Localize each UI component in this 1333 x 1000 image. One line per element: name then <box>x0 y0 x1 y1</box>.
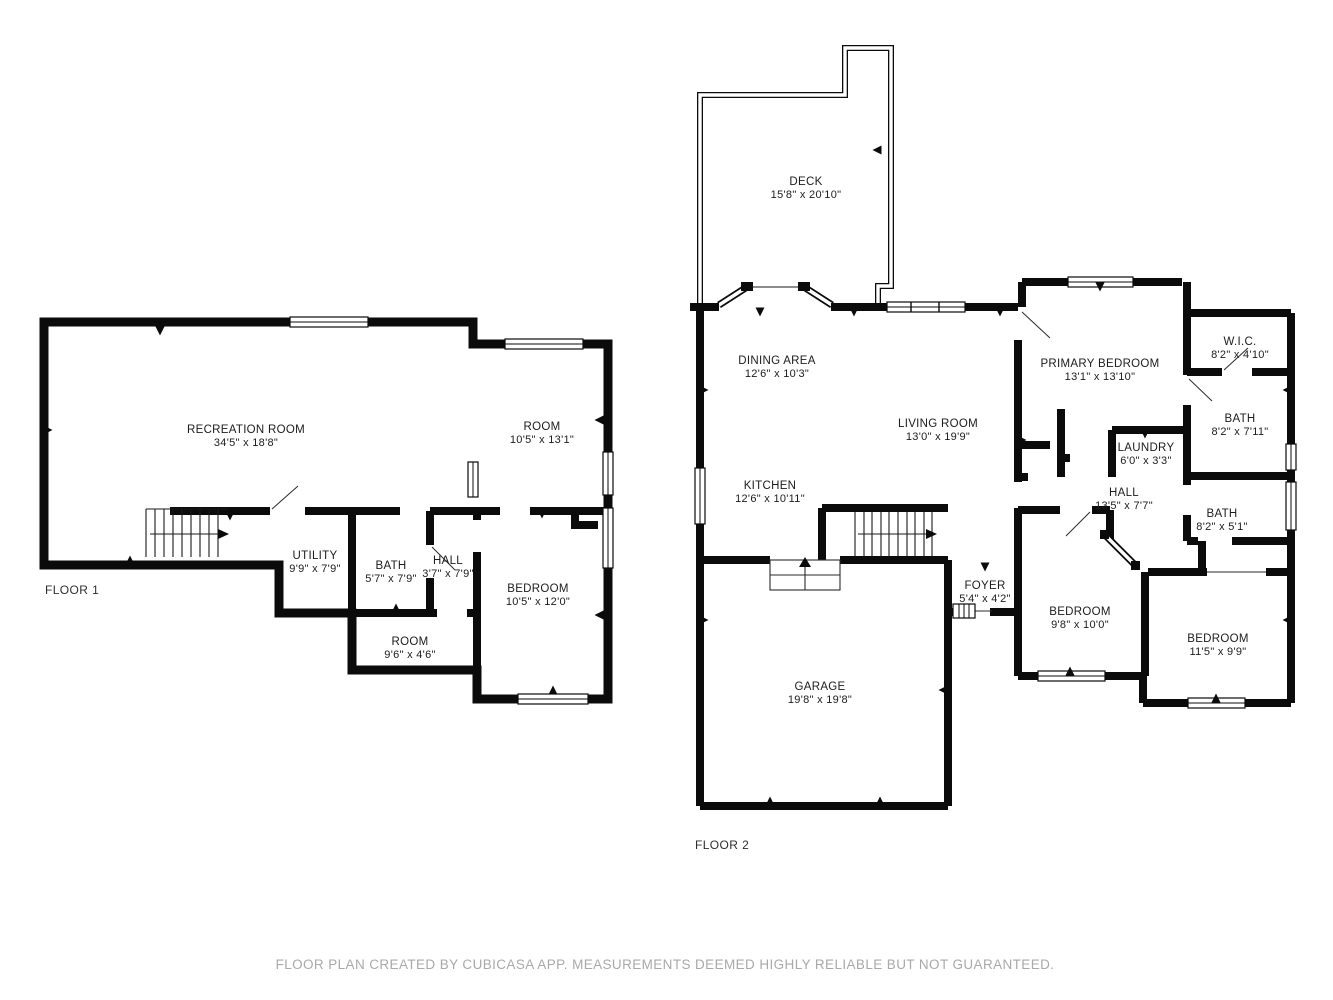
room-label-hall-f2: HALL 13'5" x 7'7" <box>1095 487 1153 513</box>
room-label-bath-f1: BATH 5'7" x 7'9" <box>365 560 416 586</box>
room-label-bedroom-f1: BEDROOM 10'5" x 12'0" <box>506 583 570 609</box>
room-label-hall-f1: HALL 3'7" x 7'9" <box>422 555 473 581</box>
room-label-laundry: LAUNDRY 6'0" x 3'3" <box>1118 442 1175 468</box>
dimension-ticks <box>44 146 1292 806</box>
room-label-recreation: RECREATION ROOM 34'5" x 18'8" <box>187 424 305 450</box>
room-label-foyer: FOYER 5'4" x 4'2" <box>959 580 1010 606</box>
room-label-bath-upper: BATH 8'2" x 7'11" <box>1212 413 1269 439</box>
room-label-garage: GARAGE 19'8" x 19'8" <box>788 681 852 707</box>
floor2-label: FLOOR 2 <box>695 838 749 852</box>
room-label-wic: W.I.C. 8'2" x 4'10" <box>1211 336 1269 362</box>
room-label-bath-lower: BATH 8'2" x 5'1" <box>1196 508 1247 534</box>
room-label-kitchen: KITCHEN 12'6" x 10'11" <box>735 480 805 506</box>
floor1-label: FLOOR 1 <box>45 583 99 597</box>
footer-disclaimer: FLOOR PLAN CREATED BY CUBICASA APP. MEAS… <box>276 957 1055 972</box>
room-label-utility: UTILITY 9'9" x 7'9" <box>289 550 340 576</box>
room-label-room-lower: ROOM 9'6" x 4'6" <box>384 636 435 662</box>
floor1-walls <box>44 322 608 699</box>
room-label-living: LIVING ROOM 13'0" x 19'9" <box>898 418 978 444</box>
room-label-room-upper: ROOM 10'5" x 13'1" <box>510 421 574 447</box>
room-label-primary-bedroom: PRIMARY BEDROOM 13'1" x 13'10" <box>1040 358 1159 384</box>
entry-door-icon <box>953 604 975 618</box>
floor2-stairs <box>855 512 937 556</box>
room-label-deck: DECK 15'8" x 20'10" <box>771 176 842 202</box>
kitchen-step-box <box>770 557 840 590</box>
room-label-bedroom-left: BEDROOM 9'8" x 10'0" <box>1049 606 1111 632</box>
floorplan-page: RECREATION ROOM 34'5" x 18'8" ROOM 10'5"… <box>0 0 1333 1000</box>
room-label-dining: DINING AREA 12'6" x 10'3" <box>738 355 815 381</box>
floor1-stairs <box>146 509 229 557</box>
room-label-bedroom-right: BEDROOM 11'5" x 9'9" <box>1187 633 1249 659</box>
